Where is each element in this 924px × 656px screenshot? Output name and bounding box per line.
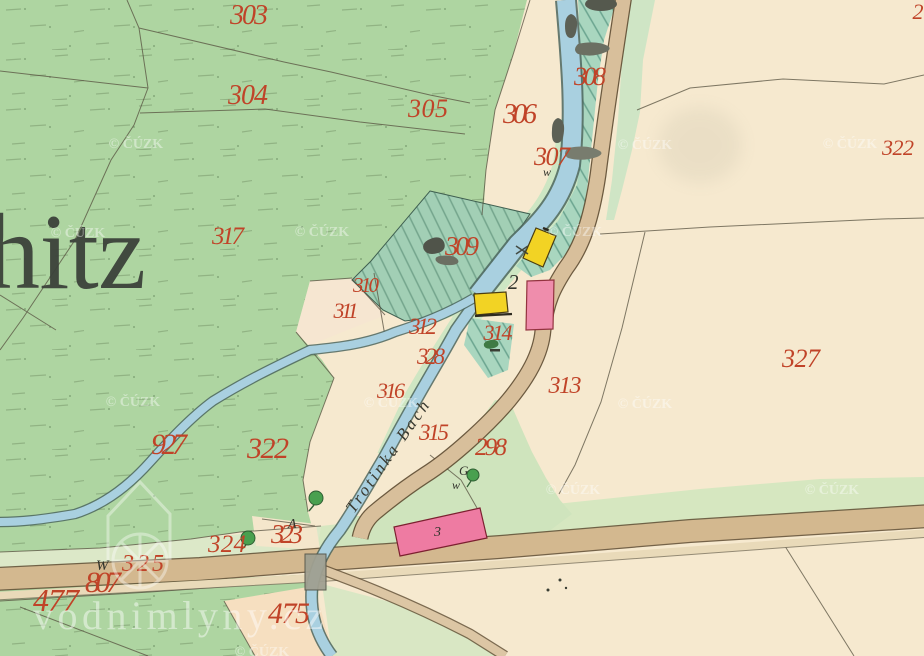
svg-text:© ČÚZK: © ČÚZK	[548, 223, 603, 240]
svg-text:© ČÚZK: © ČÚZK	[546, 481, 601, 498]
svg-text:322: 322	[246, 432, 289, 465]
svg-text:308: 308	[573, 62, 606, 91]
svg-text:w: w	[452, 478, 460, 492]
svg-text:305: 305	[407, 94, 448, 123]
svg-text:323: 323	[270, 519, 303, 549]
svg-text:322: 322	[881, 135, 914, 160]
svg-text:304: 304	[227, 80, 268, 111]
svg-text:307: 307	[533, 142, 571, 171]
svg-text:hitz: hitz	[0, 193, 148, 312]
svg-text:309: 309	[444, 231, 480, 261]
svg-text:315: 315	[418, 420, 449, 445]
svg-text:w: w	[543, 165, 551, 179]
svg-text:© ČÚZK: © ČÚZK	[109, 135, 164, 152]
svg-text:313: 313	[548, 373, 582, 399]
svg-text:© ČÚZK: © ČÚZK	[805, 481, 860, 498]
svg-text:314: 314	[483, 320, 513, 345]
svg-text:303: 303	[229, 0, 268, 31]
svg-text:A: A	[287, 517, 297, 532]
svg-text:306: 306	[502, 99, 537, 130]
svg-text:© ČÚZK: © ČÚZK	[235, 643, 290, 656]
svg-text:W: W	[96, 558, 110, 574]
svg-text:© ČÚZK: © ČÚZK	[51, 224, 106, 241]
svg-text:324: 324	[207, 531, 246, 558]
svg-text:© ČÚZK: © ČÚZK	[618, 136, 673, 153]
svg-text:© ČÚZK: © ČÚZK	[823, 135, 878, 152]
svg-text:© ČÚZK: © ČÚZK	[618, 395, 673, 412]
svg-text:3: 3	[433, 525, 441, 540]
svg-text:G: G	[459, 463, 469, 478]
svg-text:298: 298	[475, 434, 508, 461]
svg-text:© ČÚZK: © ČÚZK	[106, 393, 161, 410]
svg-text:327: 327	[781, 344, 821, 373]
svg-text:vodnimlyny.cz: vodnimlyny.cz	[33, 593, 328, 638]
svg-text:2: 2	[508, 270, 519, 294]
svg-text:311: 311	[333, 298, 359, 323]
svg-text:317: 317	[211, 223, 246, 250]
svg-text:2: 2	[913, 0, 924, 24]
svg-text:927: 927	[151, 428, 189, 461]
svg-text:312: 312	[408, 314, 437, 339]
svg-text:© ČÚZK: © ČÚZK	[295, 223, 350, 240]
svg-text:310: 310	[352, 273, 380, 297]
svg-text:328: 328	[416, 344, 446, 369]
svg-text:© ČÚZK: © ČÚZK	[364, 394, 419, 411]
